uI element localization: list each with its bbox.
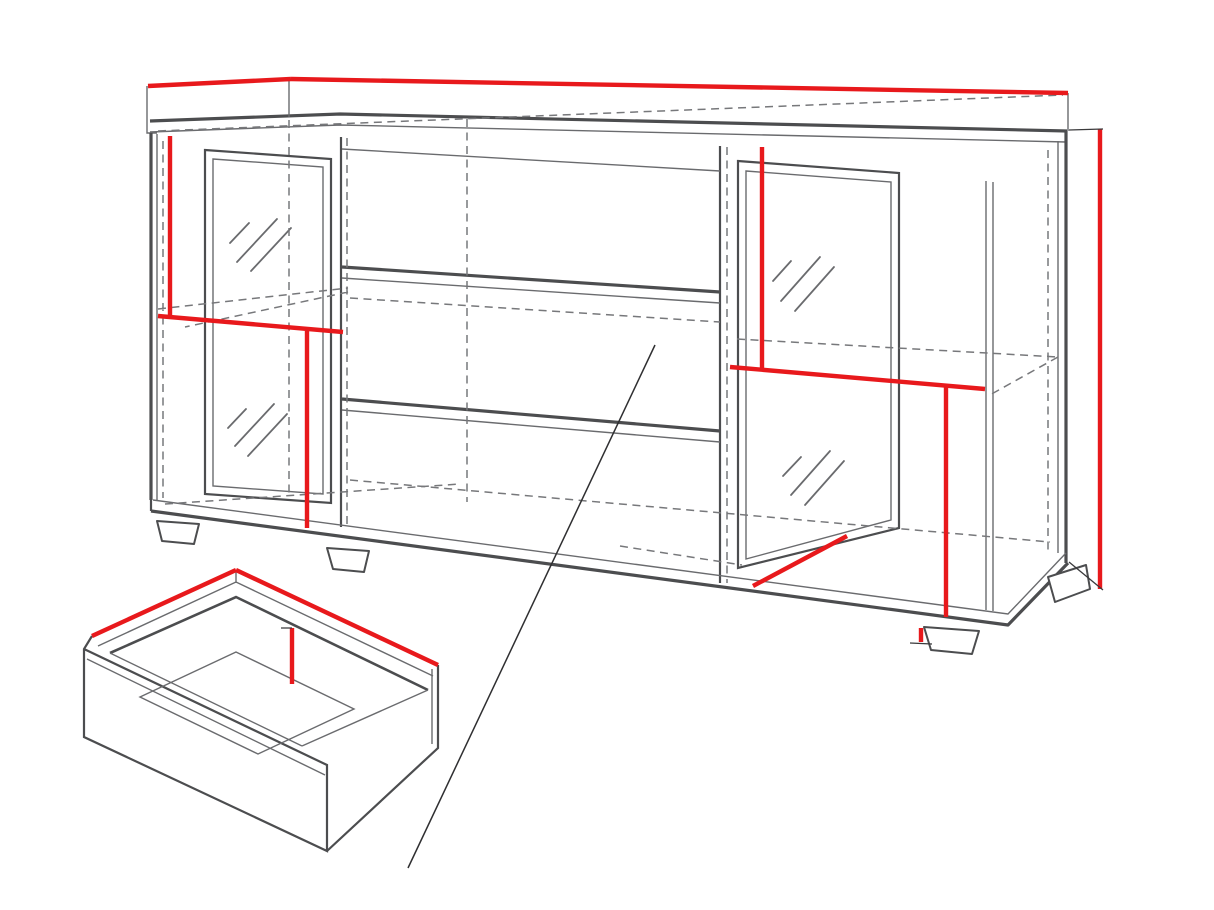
dimension-labels: 40cm 150cm 70cm 32cm 37cm 31cm 32cm 37cm… — [88, 43, 1135, 709]
dimension-line-right-shelf — [730, 367, 985, 389]
glass-reflection-icon — [773, 257, 834, 311]
cabinet-outline — [147, 80, 1068, 625]
dimension-line-drawer-width — [236, 570, 438, 665]
dimension-line-top-width — [291, 79, 1068, 93]
right-glass-door-pane — [746, 171, 891, 559]
dimension-line-top-depth — [148, 79, 291, 86]
top-front-edge — [150, 114, 1067, 131]
dimension-label-drawer-depth: 33cm — [88, 556, 192, 633]
cabinet-foot — [157, 521, 199, 544]
drawer-inner-front-rim — [87, 653, 432, 775]
drawer-detail — [84, 570, 438, 851]
cabinet-foot — [1048, 565, 1090, 602]
cabinet-foot — [924, 627, 979, 654]
diagram-canvas: 40cm 150cm 70cm 32cm 37cm 31cm 32cm 37cm… — [0, 0, 1214, 910]
dimension-lines — [92, 79, 1103, 684]
bottom-front-edge — [151, 511, 1068, 625]
section-dividers — [151, 137, 720, 583]
drawer-divider-upper — [342, 267, 720, 292]
dimension-label-top-width: 150cm — [555, 43, 674, 82]
cabinet-feet — [157, 521, 1090, 654]
middle-top-rail — [342, 149, 720, 171]
drawer-callout-leader-line — [408, 345, 655, 868]
dimension-line-drawer-depth — [92, 570, 236, 636]
drawer-cavity-bottom — [140, 652, 354, 754]
drawer-gap-upper — [342, 278, 720, 303]
dimension-label-top-depth: 40cm — [168, 45, 264, 84]
side-inner-edges — [157, 134, 1058, 611]
hidden-edge-dashed-lines — [158, 95, 1063, 583]
cabinet-foot — [327, 548, 369, 572]
furniture-dimension-diagram: 40cm 150cm 70cm 32cm 37cm 31cm 32cm 37cm… — [0, 0, 1214, 910]
dimension-line-left-shelf — [158, 316, 343, 332]
glass-reflection-icon — [230, 219, 291, 271]
dimension-label-right-lower-door: 31cm — [907, 452, 946, 548]
glass-reflection-icon — [228, 404, 287, 456]
glass-reflection-icon — [783, 451, 844, 505]
